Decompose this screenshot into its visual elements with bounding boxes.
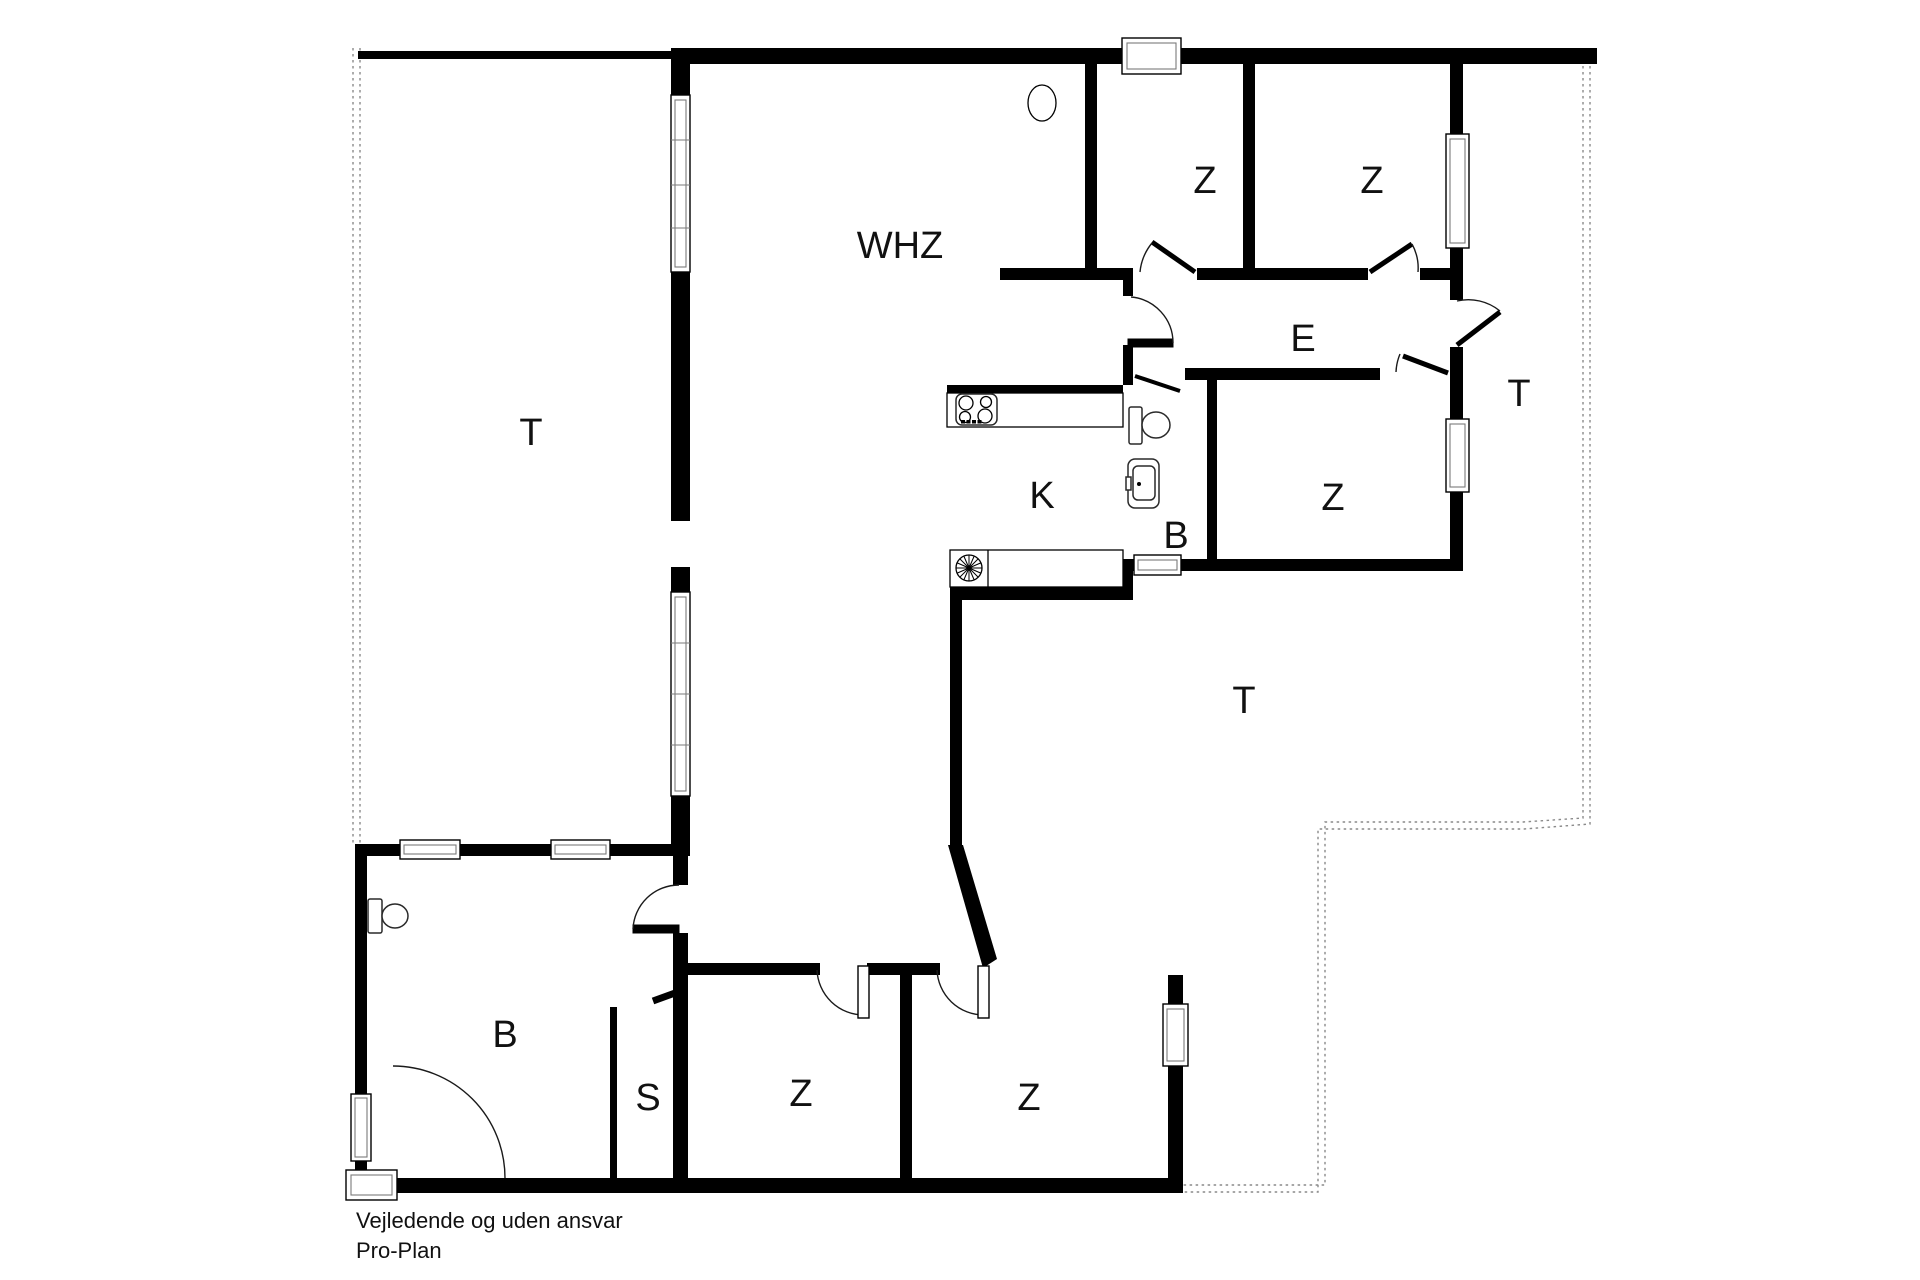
window-icon-bedroom-middle <box>1446 419 1469 492</box>
door-swing-icon-bedroom-top-left <box>1140 242 1195 272</box>
window-icon-terrace-wall-upper <box>671 95 690 272</box>
door-swing-icon-entrance <box>393 1066 505 1178</box>
door-swing-icon-bath-middle <box>1135 376 1180 391</box>
wall-bottom-bedrooms-divider <box>900 963 912 1178</box>
door-swing-icon-bedroom-middle <box>1396 354 1448 373</box>
room-label-terrace-middle: T <box>1232 680 1255 722</box>
door-swing-icon-hall-to-terrace <box>1457 300 1500 345</box>
room-label-bath-middle: B <box>1163 515 1188 557</box>
wall-bedroom1-left <box>1085 63 1097 268</box>
room-label-kitchen: K <box>1029 475 1054 517</box>
window-icon-bedroom-bottom-right <box>1163 1004 1188 1066</box>
wall-top-right <box>1181 48 1597 64</box>
ceiling-lamp-icon <box>1028 85 1056 121</box>
wall-bedrooms-divider <box>1243 63 1255 268</box>
door-swing-icon-living-to-hall <box>1128 297 1173 347</box>
sink-icon <box>1126 459 1159 508</box>
room-label-bedroom-top-left: Z <box>1193 160 1216 202</box>
room-label-bath-main: B <box>492 1014 517 1056</box>
stove-icon <box>956 394 997 425</box>
room-labels: T WHZ Z Z E T K B Z T B S Z Z <box>492 160 1530 1119</box>
floor-plan-drawing: T WHZ Z Z E T K B Z T B S Z Z Vejledende… <box>0 0 1920 1280</box>
wall-top-left <box>673 48 1122 64</box>
room-label-terrace-right: T <box>1507 373 1530 415</box>
window-icon-bedroom-top-right <box>1446 134 1469 248</box>
window-icon-bath-left <box>351 1094 371 1161</box>
window-icon-bath-top-2 <box>551 840 610 859</box>
extractor-fan-icon <box>956 555 982 581</box>
room-label-terrace-left: T <box>519 412 542 454</box>
toilet-icon-bath-main <box>368 899 408 933</box>
property-boundary-dotted <box>353 48 1590 1192</box>
disclaimer-text: Vejledende og uden ansvar <box>356 1208 623 1233</box>
room-label-bedroom-bottom-right: Z <box>1017 1077 1040 1119</box>
door-swing-icon-bedroom-top-right <box>1370 244 1418 272</box>
door-swing-icon-bedroom-bottom-right <box>937 966 989 1018</box>
room-label-storage: S <box>635 1077 660 1119</box>
wall-top-terrace <box>358 51 673 59</box>
doors <box>393 242 1500 1178</box>
room-label-bedroom-middle: Z <box>1321 477 1344 519</box>
footer: Vejledende og uden ansvar Pro-Plan <box>356 1208 623 1263</box>
wall-kitchen-top <box>947 385 1123 393</box>
brand-text: Pro-Plan <box>356 1238 442 1263</box>
room-label-hall: E <box>1290 318 1315 360</box>
toilet-icon-bath-middle <box>1129 407 1170 444</box>
window-icon-bath-top-1 <box>400 840 460 859</box>
wall-storage-left <box>610 1007 617 1178</box>
door-swing-icon-bedroom-bottom-left <box>817 966 869 1018</box>
room-label-bedroom-bottom-left: Z <box>789 1073 812 1115</box>
window-icon-top <box>1122 38 1181 74</box>
window-icon-terrace-wall-lower <box>671 592 690 796</box>
window-icon-bath-middle-bottom <box>1134 555 1181 575</box>
floor-plan-page: T WHZ Z Z E T K B Z T B S Z Z Vejledende… <box>0 0 1920 1280</box>
door-swing-icon-bath-main <box>633 885 679 933</box>
walls <box>355 48 1597 1193</box>
entrance-door-icon <box>346 1170 397 1200</box>
room-label-living-room: WHZ <box>857 225 944 267</box>
room-label-bedroom-top-right: Z <box>1360 160 1383 202</box>
wall-bottom <box>355 1178 1183 1193</box>
